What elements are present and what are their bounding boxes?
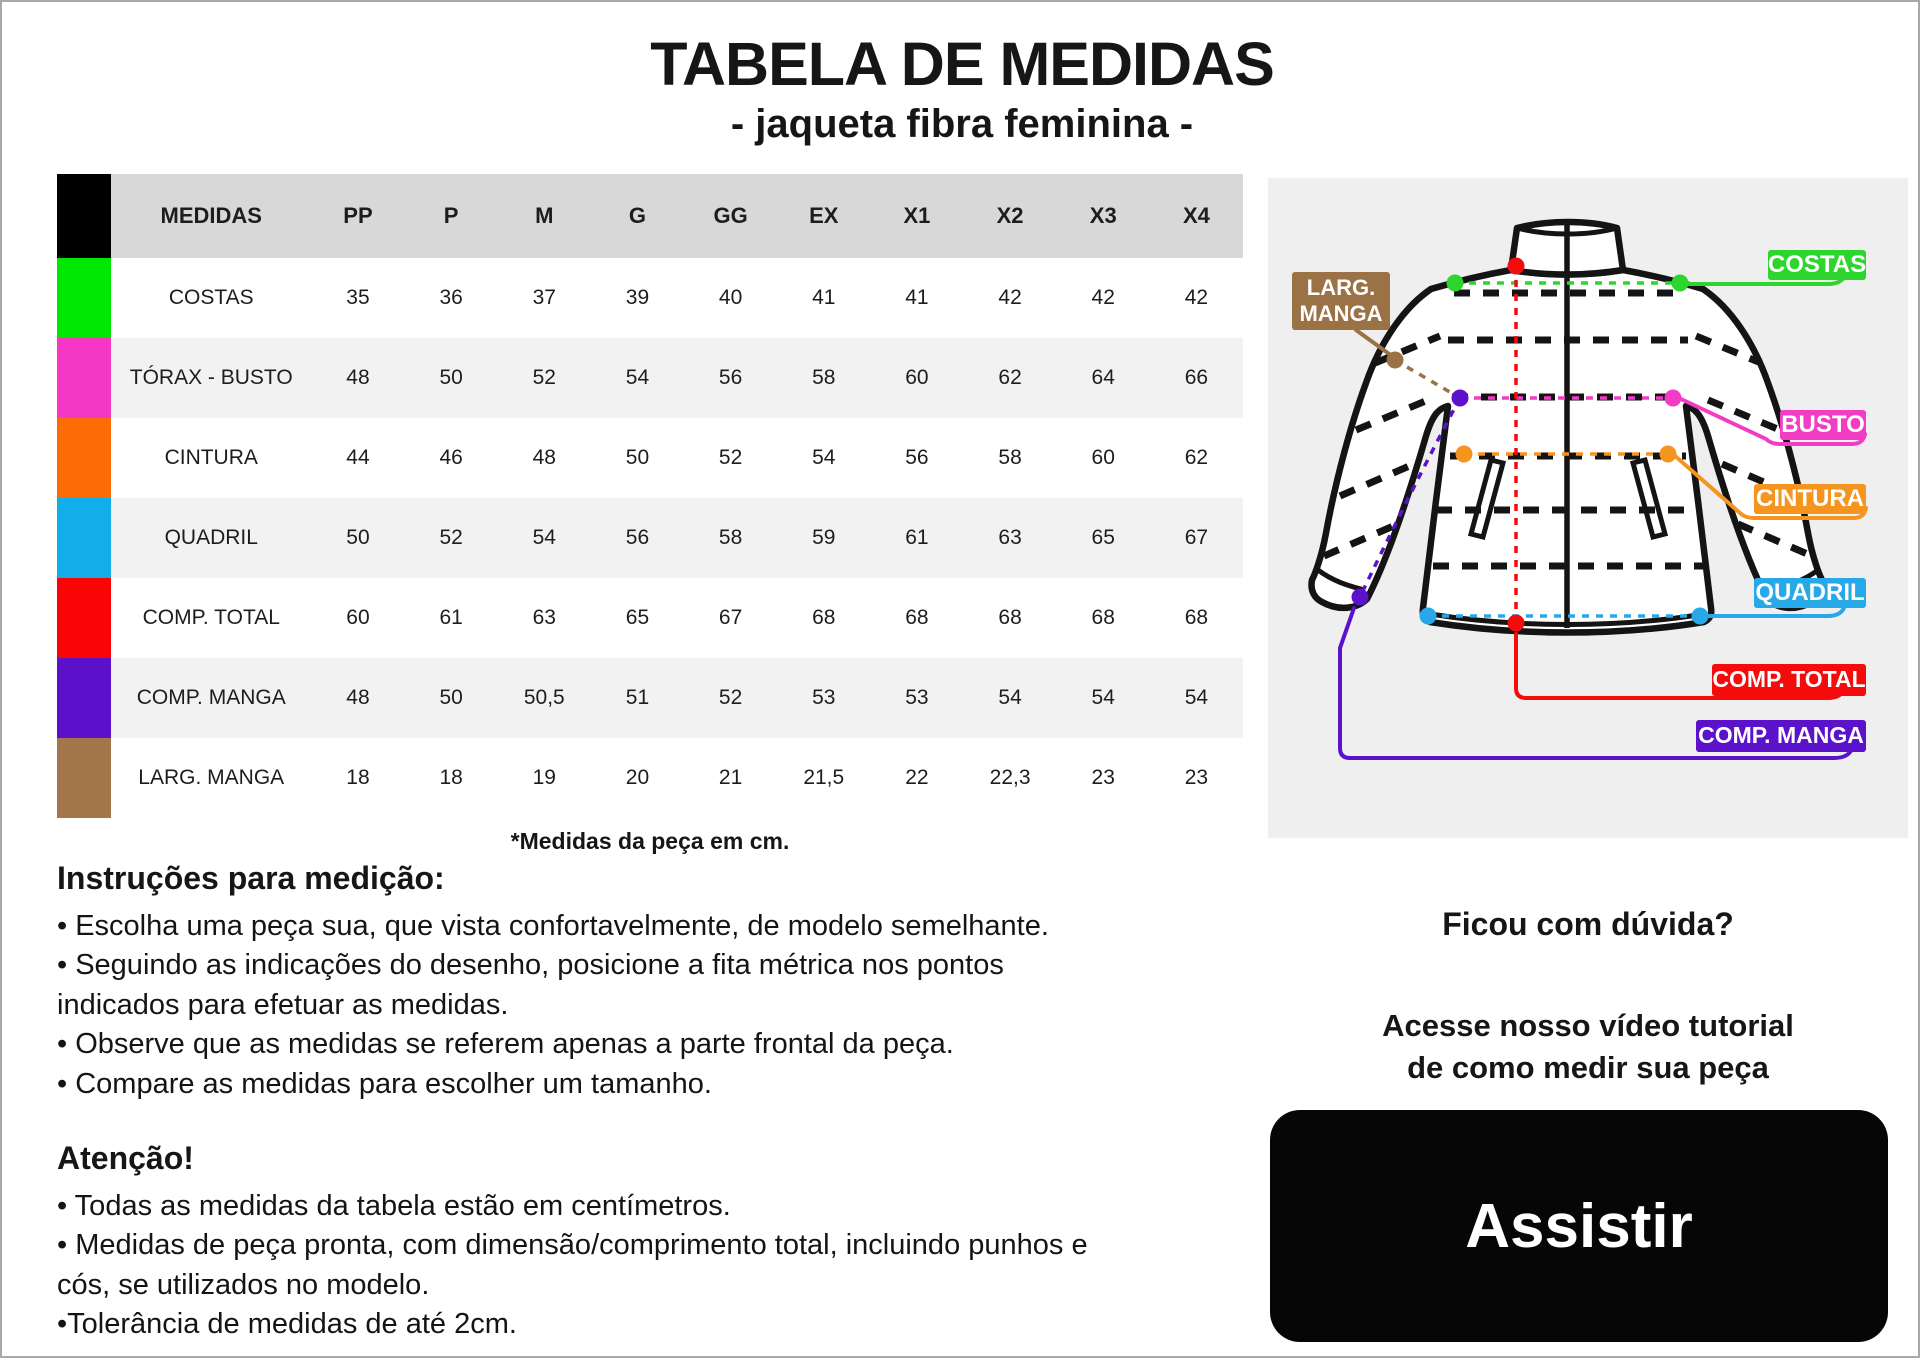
table-cell: 52: [684, 418, 777, 498]
table-cell: 60: [870, 338, 963, 418]
table-cell: 19: [498, 738, 591, 818]
table-cell: 59: [777, 498, 870, 578]
jacket-diagram-svg: COSTAS BUSTO CINTURA QUADRIL COMP. TOTAL: [1268, 178, 1908, 838]
table-cell: 50,5: [498, 658, 591, 738]
row-label: COMP. TOTAL: [111, 578, 311, 658]
svg-text:COSTAS: COSTAS: [1768, 251, 1866, 278]
table-cell: 52: [684, 658, 777, 738]
table-cell: 54: [1057, 658, 1150, 738]
watch-video-button[interactable]: Assistir: [1270, 1110, 1888, 1342]
svg-text:CINTURA: CINTURA: [1756, 485, 1864, 512]
table-cell: 53: [777, 658, 870, 738]
svg-text:COMP. MANGA: COMP. MANGA: [1698, 722, 1864, 748]
size-column-header: X3: [1057, 174, 1150, 258]
table-cell: 40: [684, 258, 777, 338]
table-cell: 62: [1150, 418, 1243, 498]
header-measures-label: MEDIDAS: [111, 174, 311, 258]
instruction-bullet: • Compare as medidas para escolher um ta…: [57, 1065, 1117, 1104]
size-column-header: PP: [311, 174, 404, 258]
attention-section: Atenção! • Todas as medidas da tabela es…: [57, 1140, 1117, 1345]
table-cell: 23: [1057, 738, 1150, 818]
table-cell: 56: [684, 338, 777, 418]
attention-bullet: •Tolerância de medidas de até 2cm.: [57, 1305, 1117, 1344]
jacket-measurement-diagram: COSTAS BUSTO CINTURA QUADRIL COMP. TOTAL: [1268, 178, 1908, 838]
table-cell: 41: [870, 258, 963, 338]
label-costas: COSTAS: [1768, 250, 1866, 280]
row-swatch: [57, 498, 111, 578]
table-cell: 54: [1150, 658, 1243, 738]
help-question: Ficou com dúvida?: [1268, 906, 1908, 943]
table-cell: 41: [777, 258, 870, 338]
table-cell: 67: [684, 578, 777, 658]
attention-heading: Atenção!: [57, 1140, 1117, 1177]
row-label: LARG. MANGA: [111, 738, 311, 818]
row-label: QUADRIL: [111, 498, 311, 578]
table-cell: 53: [870, 658, 963, 738]
table-row-costas: COSTAS 35 36 37 39 40 41 41 42 42 42: [57, 258, 1243, 338]
row-swatch: [57, 738, 111, 818]
row-label: TÓRAX - BUSTO: [111, 338, 311, 418]
table-cell: 50: [311, 498, 404, 578]
label-comp-total: COMP. TOTAL: [1712, 664, 1866, 696]
table-cell: 67: [1150, 498, 1243, 578]
instruction-bullet: • Escolha uma peça sua, que vista confor…: [57, 907, 1117, 946]
table-row-larg-manga: LARG. MANGA 18 18 19 20 21 21,5 22 22,3 …: [57, 738, 1243, 818]
table-cell: 18: [311, 738, 404, 818]
table-cell: 65: [591, 578, 684, 658]
table-cell: 18: [405, 738, 498, 818]
table-cell: 37: [498, 258, 591, 338]
label-quadril: QUADRIL: [1754, 578, 1866, 608]
table-cell: 35: [311, 258, 404, 338]
table-cell: 21,5: [777, 738, 870, 818]
row-label: COSTAS: [111, 258, 311, 338]
page-subtitle: - jaqueta fibra feminina -: [2, 102, 1920, 147]
table-cell: 48: [498, 418, 591, 498]
table-row-comp-total: COMP. TOTAL 60 61 63 65 67 68 68 68 68 6…: [57, 578, 1243, 658]
table-cell: 61: [405, 578, 498, 658]
table-cell: 63: [964, 498, 1057, 578]
table-cell: 54: [591, 338, 684, 418]
table-cell: 60: [311, 578, 404, 658]
table-cell: 48: [311, 338, 404, 418]
table-cell: 50: [591, 418, 684, 498]
table-cell: 62: [964, 338, 1057, 418]
measurements-table: MEDIDAS PP P M G GG EX X1 X2 X3 X4 COSTA…: [57, 174, 1243, 818]
size-column-header: G: [591, 174, 684, 258]
title-block: TABELA DE MEDIDAS - jaqueta fibra femini…: [2, 32, 1920, 147]
attention-bullet: • Medidas de peça pronta, com dimensão/c…: [57, 1226, 1117, 1305]
table-cell: 20: [591, 738, 684, 818]
help-tutorial-line2: de como medir sua peça: [1268, 1047, 1908, 1089]
table-cell: 22,3: [964, 738, 1057, 818]
table-cell: 42: [1150, 258, 1243, 338]
row-label: COMP. MANGA: [111, 658, 311, 738]
table-header-row: MEDIDAS PP P M G GG EX X1 X2 X3 X4: [57, 174, 1243, 258]
table-cell: 50: [405, 338, 498, 418]
table-cell: 56: [591, 498, 684, 578]
page-title: TABELA DE MEDIDAS: [2, 32, 1920, 96]
table-cell: 60: [1057, 418, 1150, 498]
table-cell: 58: [964, 418, 1057, 498]
table-cell: 66: [1150, 338, 1243, 418]
label-comp-manga: COMP. MANGA: [1696, 720, 1866, 752]
table-cell: 48: [311, 658, 404, 738]
table-cell: 68: [1150, 578, 1243, 658]
table-cell: 51: [591, 658, 684, 738]
instructions-section: Instruções para medição: • Escolha uma p…: [57, 860, 1117, 1104]
table-cell: 22: [870, 738, 963, 818]
table-cell: 23: [1150, 738, 1243, 818]
attention-bullet: • Todas as medidas da tabela estão em ce…: [57, 1187, 1117, 1226]
help-tutorial-line1: Acesse nosso vídeo tutorial: [1268, 1005, 1908, 1047]
table-cell: 42: [964, 258, 1057, 338]
help-block: Ficou com dúvida? Acesse nosso vídeo tut…: [1268, 906, 1908, 1089]
table-cell: 42: [1057, 258, 1150, 338]
size-chart-page: TABELA DE MEDIDAS - jaqueta fibra femini…: [0, 0, 1920, 1358]
svg-text:COMP. TOTAL: COMP. TOTAL: [1712, 666, 1865, 692]
table-cell: 68: [870, 578, 963, 658]
instruction-bullet: • Seguindo as indicações do desenho, pos…: [57, 946, 1117, 1025]
table-cell: 68: [964, 578, 1057, 658]
row-swatch: [57, 578, 111, 658]
table-cell: 54: [777, 418, 870, 498]
instructions-heading: Instruções para medição:: [57, 860, 1117, 897]
table-cell: 61: [870, 498, 963, 578]
table-cell: 50: [405, 658, 498, 738]
table-row-quadril: QUADRIL 50 52 54 56 58 59 61 63 65 67: [57, 498, 1243, 578]
size-column-header: P: [405, 174, 498, 258]
label-busto: BUSTO: [1780, 410, 1866, 440]
svg-text:LARG.: LARG.: [1307, 275, 1375, 300]
svg-text:QUADRIL: QUADRIL: [1755, 579, 1864, 606]
row-label: CINTURA: [111, 418, 311, 498]
label-cintura: CINTURA: [1754, 484, 1866, 514]
table-cell: 58: [777, 338, 870, 418]
table-cell: 58: [684, 498, 777, 578]
row-swatch: [57, 418, 111, 498]
table-cell: 21: [684, 738, 777, 818]
table-cell: 54: [964, 658, 1057, 738]
table-footnote: *Medidas da peça em cm.: [57, 828, 1243, 855]
size-column-header: EX: [777, 174, 870, 258]
row-swatch: [57, 658, 111, 738]
table-cell: 54: [498, 498, 591, 578]
size-column-header: X2: [964, 174, 1057, 258]
size-column-header: X1: [870, 174, 963, 258]
table-cell: 52: [498, 338, 591, 418]
table-cell: 52: [405, 498, 498, 578]
svg-text:MANGA: MANGA: [1299, 301, 1382, 326]
help-tutorial-text: Acesse nosso vídeo tutorial de como medi…: [1268, 1005, 1908, 1089]
svg-text:BUSTO: BUSTO: [1781, 411, 1865, 438]
table-cell: 36: [405, 258, 498, 338]
label-larg-manga: LARG. MANGA: [1292, 272, 1390, 330]
table-row-comp-manga: COMP. MANGA 48 50 50,5 51 52 53 53 54 54…: [57, 658, 1243, 738]
table-cell: 64: [1057, 338, 1150, 418]
table-cell: 65: [1057, 498, 1150, 578]
table-cell: 46: [405, 418, 498, 498]
instruction-bullet: • Observe que as medidas se referem apen…: [57, 1025, 1117, 1064]
table-row-torax-busto: TÓRAX - BUSTO 48 50 52 54 56 58 60 62 64…: [57, 338, 1243, 418]
header-swatch: [57, 174, 111, 258]
table-cell: 44: [311, 418, 404, 498]
size-column-header: X4: [1150, 174, 1243, 258]
table-cell: 56: [870, 418, 963, 498]
table-cell: 63: [498, 578, 591, 658]
table-cell: 68: [1057, 578, 1150, 658]
table-cell: 68: [777, 578, 870, 658]
table-cell: 39: [591, 258, 684, 338]
row-swatch: [57, 258, 111, 338]
size-column-header: M: [498, 174, 591, 258]
size-column-header: GG: [684, 174, 777, 258]
row-swatch: [57, 338, 111, 418]
table-row-cintura: CINTURA 44 46 48 50 52 54 56 58 60 62: [57, 418, 1243, 498]
